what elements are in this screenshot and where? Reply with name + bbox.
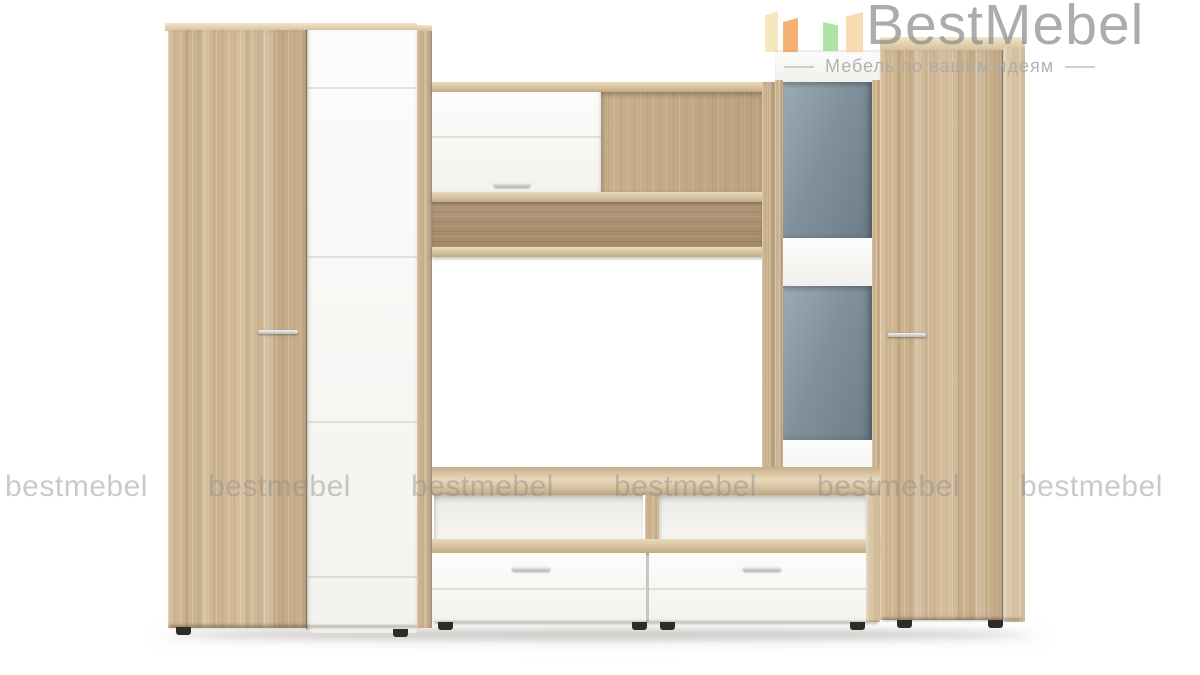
white-door-seam (308, 576, 417, 578)
white-door-seam (308, 87, 417, 89)
left-wardrobe-bottom-shadow (169, 625, 417, 628)
bench-open-niche-right (659, 495, 866, 539)
right-wardrobe-wood-door (880, 50, 1003, 620)
center-upright-panel (417, 25, 432, 628)
right-wardrobe (880, 37, 1025, 634)
bench-top-band (432, 467, 880, 495)
left-wardrobe-foot (176, 627, 191, 635)
drawer-seam (432, 588, 646, 590)
brand-tagline-row: Мебель по вашим идеям (784, 56, 1156, 77)
bench-right-side-strip (866, 495, 880, 539)
pale-yellow-bar-icon (765, 11, 778, 52)
orange-bar-icon (783, 18, 798, 52)
white-door-seam (308, 256, 417, 258)
glass-door-middle-band (783, 238, 872, 286)
bench-drawer-left (432, 553, 646, 622)
bench-bottom-shadow (434, 621, 878, 624)
glass-door-lower (783, 286, 872, 440)
tagline-left-dash (784, 66, 814, 68)
hutch-flap-cabinet (432, 92, 601, 192)
center-upright-top-edge (417, 25, 432, 31)
white-door-seam (308, 421, 417, 423)
glass-cabinet-right-frame (872, 80, 880, 485)
green-bar-icon (823, 22, 838, 51)
right-wardrobe-door-handle (888, 333, 926, 337)
flap-cabinet-handle (494, 183, 530, 187)
hutch-middle-shelf (432, 192, 775, 202)
hutch-right-side-panel (762, 82, 775, 497)
left-wardrobe (165, 23, 417, 634)
bench-niche-divider (645, 495, 659, 539)
right-wardrobe-side-panel (1004, 47, 1025, 622)
hutch-top-band (432, 82, 775, 92)
hutch-open-shelf-upper (601, 92, 762, 192)
brand-logo-text: BestMebel (866, 0, 1144, 58)
bench-open-niche-left (434, 495, 643, 539)
product-photo: bestmebelbestmebelbestmebelbestmebelbest… (0, 0, 1200, 675)
left-wardrobe-door-handle (258, 330, 298, 334)
bench-drawer-right (649, 553, 866, 622)
drawer-seam (649, 588, 866, 590)
brand-tagline: Мебель по вашим идеям (825, 56, 1054, 77)
bench-right-lower-strip (866, 539, 880, 622)
glass-cabinet-left-frame (775, 80, 783, 485)
hutch-open-shelf-lower (432, 202, 762, 247)
bench-drawer-handle (512, 567, 550, 571)
bench-drawer-handle (743, 567, 781, 571)
left-wardrobe-wood-door (168, 30, 307, 628)
right-wardrobe-foot (988, 620, 1003, 628)
bench-niche-shelf (432, 539, 880, 553)
bench-foot (660, 622, 675, 630)
tagline-right-dash (1065, 66, 1095, 68)
brand-logo: BestMebel Мебель по вашим идеям (760, 0, 1200, 95)
glass-door-upper (783, 82, 872, 238)
tv-bench (432, 467, 880, 630)
bench-foot (632, 622, 647, 630)
peach-bar-icon (846, 12, 863, 52)
left-wardrobe-foot (393, 629, 408, 637)
right-wardrobe-foot (897, 620, 912, 628)
glass-display-cabinet (775, 50, 880, 497)
left-wardrobe-white-doors (308, 30, 417, 633)
flap-cabinet-seam (432, 136, 601, 138)
hutch-bottom-shelf (432, 247, 775, 257)
bench-foot (850, 622, 865, 630)
wall-unit (0, 0, 1200, 675)
hutch (432, 82, 775, 257)
bench-foot (438, 622, 453, 630)
